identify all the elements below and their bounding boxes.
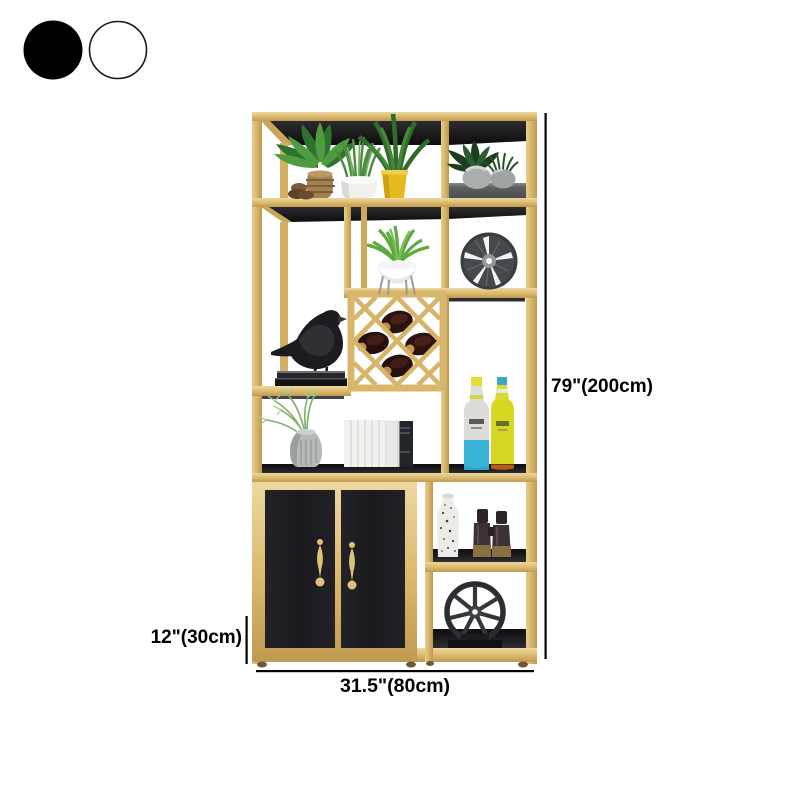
svg-text:12"(30cm): 12"(30cm) [151,627,242,648]
svg-text:79"(200cm): 79"(200cm) [551,376,653,397]
svg-text:31.5"(80cm): 31.5"(80cm) [340,675,450,697]
